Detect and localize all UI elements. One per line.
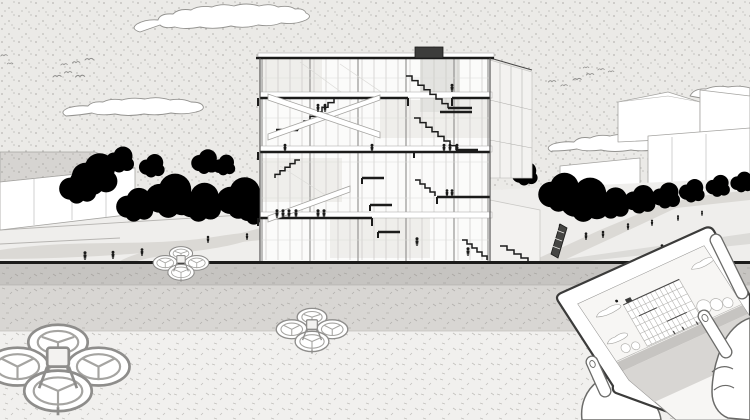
roof-box (415, 47, 443, 58)
building-section (256, 47, 540, 262)
illustration-canvas (0, 0, 750, 420)
